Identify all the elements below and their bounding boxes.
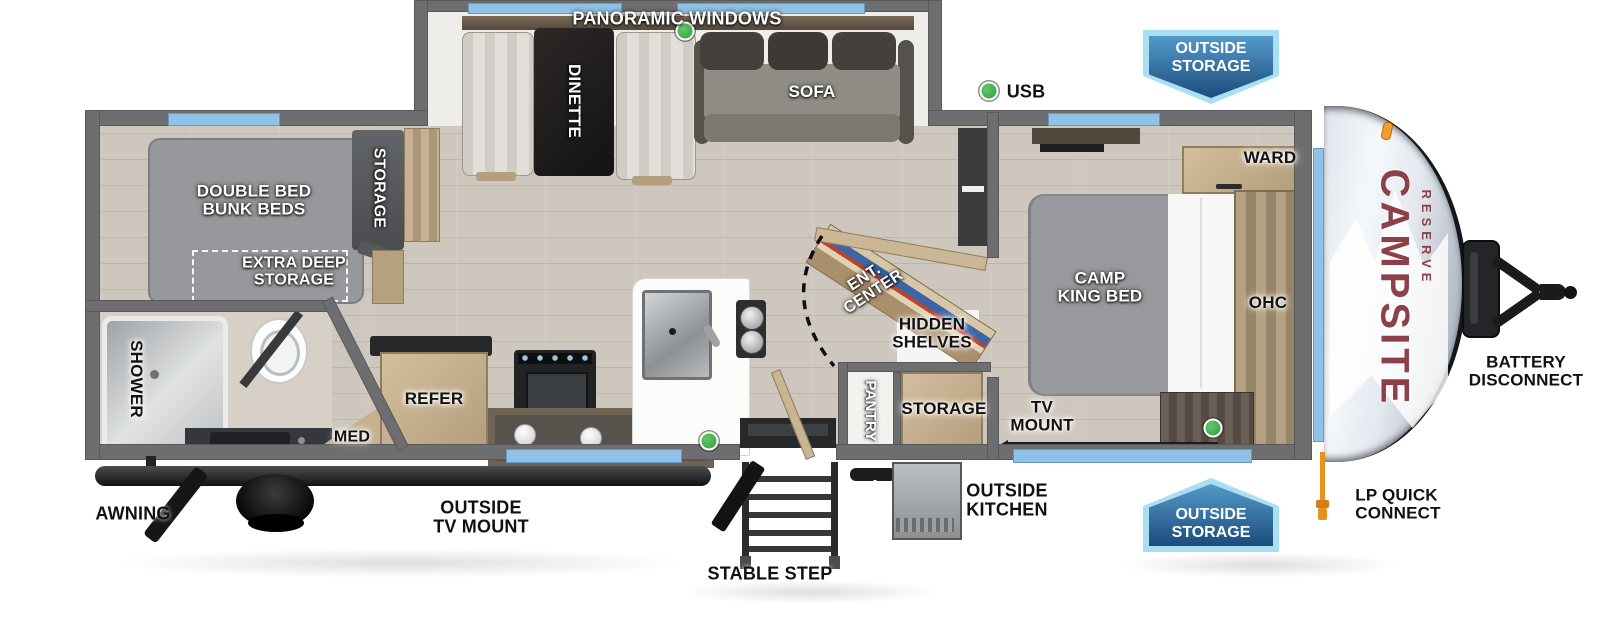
awning-label: AWNING	[95, 504, 170, 523]
dinette-bench-left	[462, 32, 534, 176]
burner	[740, 306, 764, 330]
battery-disconnect-detail	[1470, 252, 1478, 324]
double-bed-label: DOUBLE BED BUNK BEDS	[197, 183, 311, 220]
hitch-tongue	[1540, 284, 1566, 300]
front-window-strip	[1313, 148, 1324, 442]
slide-wall-left	[414, 0, 428, 122]
ground-shadow	[1120, 552, 1400, 578]
pantry-label: PANTRY	[862, 380, 878, 441]
usb-indicator-icon	[980, 82, 999, 101]
bedroom-bottom-window	[1013, 449, 1252, 463]
bunk-bath-wall	[85, 300, 332, 312]
usb-label: USB	[1007, 82, 1046, 101]
brand-primary: CAMPSITE	[1372, 169, 1415, 408]
rail-light	[514, 424, 536, 446]
ohc-label: OHC	[1249, 294, 1287, 312]
ground-shadow	[110, 548, 690, 578]
step-rung	[749, 546, 831, 552]
med-label: MED	[334, 428, 370, 445]
dinette-foot	[632, 176, 672, 185]
outside-kitchen-cable	[862, 480, 886, 526]
kitchen-sink	[642, 290, 712, 380]
floorplan: CAMPSITE RESERVE OUTSIDE STORAGE OUTSIDE…	[0, 0, 1600, 625]
panoramic-windows-label: PANORAMIC WINDOWS	[572, 9, 781, 28]
extra-deep-storage-label: EXTRA DEEP STORAGE	[242, 255, 346, 290]
outside-storage-badge-bottom: OUTSIDE STORAGE	[1143, 478, 1279, 552]
bedroom-indicator-icon	[1204, 419, 1223, 438]
camp-king-label: CAMP KING BED	[1058, 270, 1143, 307]
storage-mid-label: STORAGE	[901, 400, 986, 418]
slide-wall-right	[928, 0, 942, 122]
sofa-back-cushion	[832, 32, 896, 70]
bunk-side-cabinet	[404, 128, 440, 242]
entry-step	[748, 424, 828, 436]
shower-drain	[150, 370, 159, 379]
battery-disconnect-label: BATTERY DISCONNECT	[1469, 354, 1583, 391]
storage-rear-label: STORAGE	[370, 148, 387, 228]
sofa-back-cushion	[768, 32, 828, 70]
pantry-wall-left	[838, 362, 848, 457]
sofa-armrest	[898, 40, 914, 144]
bunk-window	[168, 113, 280, 126]
step-rail-right	[831, 462, 838, 558]
bedroom-wall-upper	[987, 112, 999, 258]
brand-secondary: RESERVE	[1419, 190, 1433, 287]
bunk-drawer-cabinet	[372, 250, 404, 304]
pantry-wall-top	[838, 362, 991, 372]
step-rung	[749, 476, 831, 482]
sofa-label: SOFA	[788, 83, 835, 101]
wardrobe-handle	[1216, 184, 1242, 189]
entry-indicator-icon	[700, 432, 719, 451]
dinette-foot	[476, 172, 516, 181]
front-wall	[1294, 110, 1312, 460]
outside-tv-mount-label: OUTSIDE TV MOUNT	[433, 499, 529, 538]
sofa-back-cushion	[700, 32, 764, 70]
bath-faucet	[298, 437, 305, 444]
badge-label: OUTSIDE STORAGE	[1143, 40, 1279, 75]
sink-drain	[669, 328, 676, 335]
refer-label: REFER	[405, 390, 464, 408]
bedroom-vent-slats	[1040, 144, 1104, 152]
outside-storage-badge-top: OUTSIDE STORAGE	[1143, 30, 1279, 104]
lp-quick-connect-label: LP QUICK CONNECT	[1355, 487, 1440, 524]
tv-backwall-shelf	[962, 186, 984, 192]
step-rung	[749, 512, 831, 518]
bedroom-vent	[1032, 128, 1140, 144]
bedroom-top-window	[1048, 113, 1160, 126]
ward-label: WARD	[1244, 149, 1297, 167]
tv-mount-label: TV MOUNT	[1010, 399, 1073, 436]
outside-kitchen-label: OUTSIDE KITCHEN	[966, 482, 1047, 521]
outside-tv-mount-foot	[248, 514, 304, 532]
pantry-divider	[893, 372, 901, 454]
stable-step-label: STABLE STEP	[708, 564, 833, 583]
burner	[740, 330, 764, 354]
lp-fitting	[1316, 500, 1329, 508]
hidden-shelves-label: HIDDEN SHELVES	[892, 316, 972, 353]
shower-label: SHOWER	[127, 340, 145, 418]
badge-label: OUTSIDE STORAGE	[1143, 506, 1279, 541]
rear-wall	[85, 110, 100, 460]
lp-nozzle	[1318, 508, 1327, 520]
dinette-bench-right	[616, 32, 696, 180]
stove-knobs	[518, 353, 592, 364]
step-rung	[749, 530, 831, 536]
dinette-label: DINETTE	[565, 64, 583, 138]
bed-head-seam	[1200, 198, 1202, 388]
bedroom-wall-lower	[987, 377, 999, 460]
sofa-front	[704, 114, 900, 142]
outside-kitchen-vents	[896, 518, 954, 532]
kitchen-bottom-window	[506, 449, 682, 463]
hitch-coupler	[1564, 286, 1577, 299]
step-rung	[749, 494, 831, 500]
